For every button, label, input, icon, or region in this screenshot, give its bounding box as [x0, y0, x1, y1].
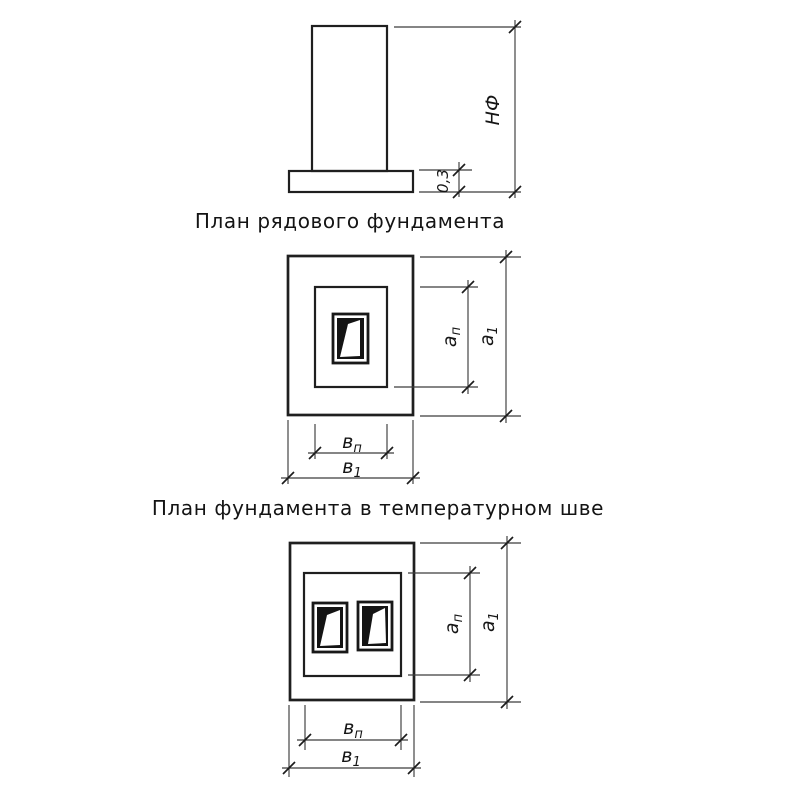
dim-sub: п: [353, 441, 362, 456]
pedestal-width-label: вп: [343, 717, 363, 742]
footing-width-label: в1: [341, 745, 360, 770]
dim-base: а: [477, 620, 499, 632]
dim-sub: 1: [352, 755, 360, 770]
height-dim-label: НФ: [482, 95, 504, 126]
dim-base: а: [476, 334, 498, 346]
column-outline: [312, 26, 387, 171]
pedestal-depth-label: ап: [441, 613, 466, 634]
column-socket-right: [358, 602, 392, 650]
dim-sub: п: [354, 727, 363, 742]
pedestal-depth-label: ап: [439, 326, 464, 347]
dim-base: в: [341, 745, 352, 767]
footing-depth-label: а1: [477, 612, 502, 632]
footing-outline: [289, 171, 413, 192]
plan-single-caption: План рядового фундамента: [195, 209, 505, 233]
dim-sub: 1: [487, 612, 502, 620]
footing-depth-label: а1: [476, 326, 501, 346]
elevation-view: НФ 0,3: [289, 20, 521, 198]
dim-base: а: [439, 335, 461, 347]
plan-double-view: ап а1 вп в1: [282, 536, 521, 777]
pedestal-width-label: вп: [342, 431, 362, 456]
footing-thickness-label: 0,3: [434, 169, 452, 193]
dim-sub: п: [451, 613, 466, 622]
dim-sub: п: [449, 326, 464, 335]
foundation-drawing-sheet: НФ 0,3 План рядового фундамента ап а1: [0, 0, 800, 800]
dim-sub: 1: [486, 326, 501, 334]
column-socket: [333, 314, 368, 363]
foundation-drawing: НФ 0,3 План рядового фундамента ап а1: [0, 0, 800, 800]
dim-base: в: [342, 456, 353, 478]
dim-base: а: [441, 622, 463, 634]
plan-single-view: ап а1 вп в1: [281, 250, 521, 484]
dim-base: в: [342, 431, 353, 453]
dim-base: в: [343, 717, 354, 739]
footing-width-label: в1: [342, 456, 361, 481]
dim-sub: 1: [353, 466, 361, 481]
plan-double-caption: План фундамента в температурном шве: [152, 496, 604, 520]
column-socket-left: [313, 603, 347, 652]
